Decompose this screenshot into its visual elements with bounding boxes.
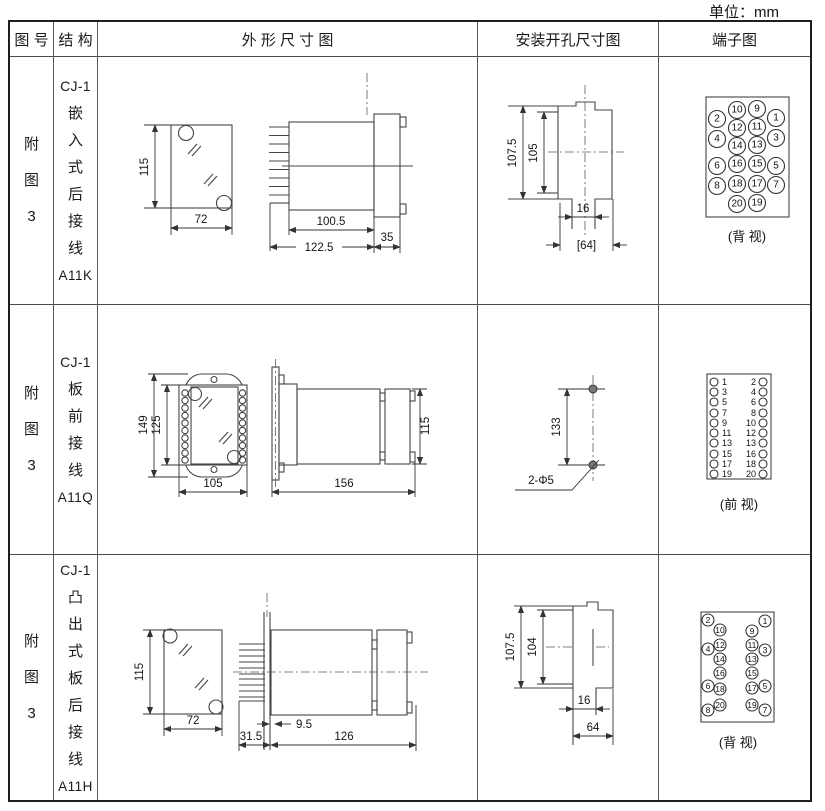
svg-text:5: 5: [773, 161, 779, 172]
outline-drawing-a11h: 115 72 9: [98, 555, 478, 800]
dim-v2: 105: [528, 143, 540, 162]
header-outline: 外 形 尺 寸 图: [98, 22, 478, 57]
terminal-pins: 1092112114314131615651817872019: [709, 101, 785, 213]
header-figure: 图 号: [10, 22, 54, 57]
structure-name: 嵌入式后接线: [67, 100, 85, 262]
svg-text:19: 19: [722, 469, 732, 479]
svg-text:1: 1: [722, 377, 727, 387]
dim-side-1: 100.5: [317, 216, 346, 228]
dim-side-height: 115: [420, 417, 432, 435]
svg-text:12: 12: [715, 640, 725, 650]
svg-text:4: 4: [706, 644, 711, 654]
header-structure: 结 构: [54, 22, 98, 57]
dim-front-2: 125: [151, 415, 163, 434]
front-view: 115 72: [134, 629, 223, 736]
dim-v2: 104: [527, 637, 539, 657]
structure-cell-a11h: CJ-1 凸出式板后接线 A11H: [54, 555, 98, 800]
svg-text:7: 7: [763, 705, 768, 715]
figure-cell-a11k: 附图3: [10, 57, 54, 305]
svg-text:3: 3: [722, 387, 727, 397]
svg-text:2: 2: [751, 377, 756, 387]
svg-text:18: 18: [746, 459, 756, 469]
header-terminal: 端子图: [659, 22, 810, 57]
front-view: 149 125 105: [138, 374, 247, 497]
structure-code: A11K: [58, 268, 92, 283]
install-cell-a11q: 133 2-Φ5: [478, 305, 659, 555]
svg-text:9: 9: [750, 626, 755, 636]
svg-text:12: 12: [746, 428, 756, 438]
terminal-pins: 2110912114314131615651817201987: [702, 614, 771, 716]
svg-text:19: 19: [747, 700, 757, 710]
structure-code: A11H: [58, 779, 93, 794]
dim-side-width: 156: [334, 478, 353, 490]
structure-cell-a11k: CJ-1 嵌入式后接线 A11K: [54, 57, 98, 305]
relay-spec-sheet: 单位：mm 图 号 结 构 外 形 尺 寸 图 安装开孔尺寸图 端子图 附图3 …: [0, 0, 825, 811]
view-caption: (背 视): [719, 735, 757, 750]
svg-text:14: 14: [731, 141, 743, 152]
dim-v1: 107.5: [507, 139, 519, 168]
dim-side-2: 9.5: [296, 719, 312, 731]
svg-text:6: 6: [714, 161, 720, 172]
terminal-diagram-a11q: 1234567891011121313151617181920 (前 视): [659, 305, 810, 555]
dim-hole-spacing: 133: [551, 417, 563, 436]
svg-text:8: 8: [714, 181, 720, 192]
dim-front-1: 149: [138, 415, 150, 434]
dim-h1: 16: [578, 695, 591, 707]
terminal-cell-a11k: 1092112114314131615651817872019 (背 视): [659, 57, 810, 305]
svg-text:13: 13: [747, 654, 757, 664]
svg-text:13: 13: [722, 438, 732, 448]
outline-cell-a11q: 149 125 105: [98, 305, 478, 555]
svg-text:15: 15: [722, 449, 732, 459]
svg-text:1: 1: [773, 113, 779, 124]
dim-front-height: 115: [134, 663, 146, 681]
install-cell-a11h: 107.5 104 16 64: [478, 555, 659, 800]
side-view: 156 115: [272, 359, 432, 497]
header-install: 安装开孔尺寸图: [478, 22, 659, 57]
dim-v1: 107.5: [505, 633, 517, 662]
svg-text:14: 14: [715, 654, 725, 664]
svg-text:16: 16: [746, 449, 756, 459]
install-drawing-a11q: 133 2-Φ5: [478, 305, 659, 555]
structure-name: 凸出式板后接线: [67, 584, 85, 773]
view-caption: (前 视): [720, 497, 758, 512]
terminal-diagram-a11k: 1092112114314131615651817872019 (背 视): [659, 57, 810, 305]
svg-text:20: 20: [731, 199, 743, 210]
svg-text:11: 11: [752, 122, 763, 133]
svg-text:3: 3: [763, 645, 768, 655]
front-view: 115 72: [139, 125, 232, 235]
dim-side-1: 31.5: [240, 731, 262, 743]
svg-text:9: 9: [722, 418, 727, 428]
structure-cell-a11q: CJ-1 板前接线 A11Q: [54, 305, 98, 555]
view-caption: (背 视): [728, 229, 766, 244]
install-drawing-a11k: 107.5 105 16 [64]: [478, 57, 659, 305]
svg-text:18: 18: [715, 684, 725, 694]
svg-text:8: 8: [751, 408, 756, 418]
svg-text:11: 11: [722, 428, 731, 438]
svg-text:8: 8: [706, 705, 711, 715]
svg-text:6: 6: [751, 397, 756, 407]
svg-text:10: 10: [731, 105, 743, 116]
dim-front-width: 72: [195, 214, 208, 226]
terminal-diagram-a11h: 2110912114314131615651817201987 (背 视): [659, 555, 810, 800]
outline-drawing-a11k: 115 72 100.5 122.5: [98, 57, 478, 305]
svg-text:6: 6: [706, 681, 711, 691]
terminal-pins: 1234567891011121313151617181920: [710, 377, 767, 479]
svg-text:18: 18: [731, 179, 743, 190]
dim-h1: 16: [577, 203, 590, 215]
svg-text:5: 5: [722, 397, 727, 407]
hole-spec-label: 2-Φ5: [528, 475, 554, 487]
svg-text:7: 7: [773, 180, 779, 191]
outline-drawing-a11q: 149 125 105: [98, 305, 478, 555]
spec-table: 图 号 结 构 外 形 尺 寸 图 安装开孔尺寸图 端子图 附图3 CJ-1 嵌…: [8, 20, 812, 802]
figure-number: 附图3: [23, 624, 41, 732]
structure-prefix: CJ-1: [60, 354, 91, 370]
terminal-cell-a11h: 2110912114314131615651817201987 (背 视): [659, 555, 810, 800]
svg-text:4: 4: [714, 134, 720, 145]
svg-text:17: 17: [747, 683, 757, 693]
structure-code: A11Q: [58, 490, 94, 505]
svg-text:13: 13: [746, 438, 756, 448]
dim-front-width: 105: [203, 478, 222, 490]
svg-text:15: 15: [751, 159, 763, 170]
structure-prefix: CJ-1: [60, 78, 91, 94]
svg-text:13: 13: [751, 140, 763, 151]
figure-cell-a11h: 附图3: [10, 555, 54, 800]
dim-h2: 64: [587, 722, 600, 734]
svg-text:3: 3: [773, 133, 779, 144]
svg-text:16: 16: [715, 668, 725, 678]
svg-text:4: 4: [751, 387, 756, 397]
unit-label: 单位：mm: [709, 1, 779, 22]
dim-front-width: 72: [187, 715, 200, 727]
outline-cell-a11h: 115 72 9: [98, 555, 478, 800]
svg-text:19: 19: [751, 198, 763, 209]
svg-text:9: 9: [754, 104, 760, 115]
outline-cell-a11k: 115 72 100.5 122.5: [98, 57, 478, 305]
svg-text:1: 1: [763, 616, 768, 626]
svg-text:10: 10: [746, 418, 756, 428]
svg-text:2: 2: [706, 615, 711, 625]
dim-side-3: 126: [334, 731, 353, 743]
svg-text:17: 17: [722, 459, 732, 469]
svg-text:10: 10: [715, 625, 725, 635]
svg-text:12: 12: [731, 123, 743, 134]
svg-text:11: 11: [748, 640, 757, 650]
svg-text:16: 16: [731, 159, 743, 170]
dim-front-height: 115: [139, 158, 151, 176]
figure-number: 附图3: [23, 127, 41, 235]
install-cell-a11k: 107.5 105 16 [64]: [478, 57, 659, 305]
side-view: 9.5 31.5 126: [233, 593, 428, 751]
svg-text:20: 20: [715, 700, 725, 710]
install-drawing-a11h: 107.5 104 16 64: [478, 555, 659, 800]
structure-name: 板前接线: [67, 376, 85, 484]
svg-text:15: 15: [747, 668, 757, 678]
svg-text:20: 20: [746, 469, 756, 479]
dim-side-2: 122.5: [305, 242, 334, 254]
side-view: 100.5 122.5 35: [269, 73, 413, 254]
dim-h2: [64]: [577, 240, 596, 252]
svg-text:5: 5: [763, 681, 768, 691]
structure-prefix: CJ-1: [60, 562, 91, 578]
figure-cell-a11q: 附图3: [10, 305, 54, 555]
terminal-cell-a11q: 1234567891011121313151617181920 (前 视): [659, 305, 810, 555]
svg-text:2: 2: [714, 114, 720, 125]
figure-number: 附图3: [23, 376, 41, 484]
dim-side-3: 35: [381, 232, 394, 244]
svg-text:17: 17: [751, 179, 763, 190]
svg-text:7: 7: [722, 408, 727, 418]
